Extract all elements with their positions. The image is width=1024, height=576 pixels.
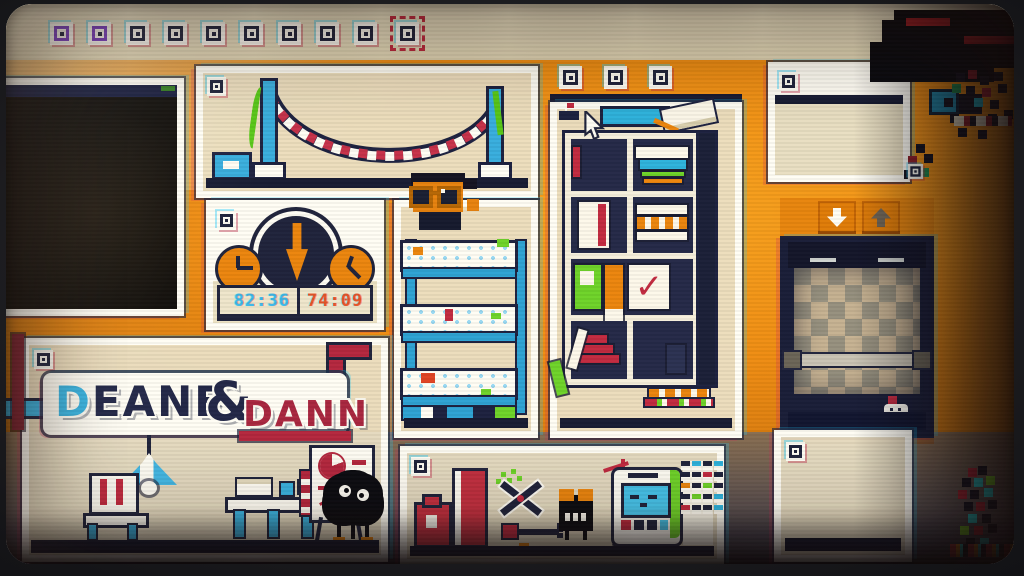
book-checkmark: ✓	[629, 265, 669, 309]
toy-boat	[559, 111, 579, 120]
paper-stack	[237, 479, 271, 495]
bookshelf-rail-bar	[550, 94, 742, 102]
shelf-cell-r1c1	[571, 139, 627, 191]
book-white-horizontal	[637, 205, 687, 214]
glasses-left-lens	[409, 186, 433, 208]
character-body	[419, 212, 461, 230]
tier-2-bar	[403, 333, 515, 341]
mouse-cursor	[583, 111, 605, 139]
table-jar	[281, 483, 293, 495]
film-frame-icon[interactable]	[88, 22, 111, 45]
book-white-horizontal	[636, 147, 688, 158]
bookshelf-tab-icon[interactable]	[649, 66, 672, 89]
blob-eye	[357, 489, 369, 501]
bookshelf-tab-icon[interactable]	[604, 66, 627, 89]
creature-crest	[578, 489, 593, 501]
blob-pupil	[359, 493, 364, 498]
grid-cell[interactable]	[692, 483, 701, 492]
grid-cell[interactable]	[681, 461, 690, 470]
machine-eye	[648, 495, 657, 499]
shelf-post-right	[517, 241, 525, 413]
bottom-edge-shadow	[6, 514, 1014, 564]
grid-cell[interactable]	[714, 461, 723, 470]
dark-room-interior	[6, 97, 177, 309]
film-frame-icon[interactable]	[316, 22, 339, 45]
block-grid[interactable]	[681, 461, 723, 514]
film-frame-selected-icon[interactable]	[396, 22, 419, 45]
chair-back-stripe	[100, 479, 107, 505]
book-orange-slim	[644, 179, 682, 183]
grid-cell[interactable]	[692, 461, 701, 470]
box-navy	[667, 345, 685, 373]
machine-mouth	[640, 503, 647, 507]
book-green	[575, 265, 601, 309]
splat-green	[491, 313, 501, 319]
glasses-character[interactable]	[403, 173, 483, 243]
character-hair-tuft	[461, 179, 477, 189]
window-control-icon[interactable]	[411, 457, 430, 476]
tier-2-tray	[403, 307, 515, 333]
bookshelf-side-slab	[699, 133, 715, 385]
red-wall-pipe	[12, 334, 24, 430]
right-edge-shadow	[853, 4, 1014, 564]
bookshelf-tab-icon[interactable]	[559, 66, 582, 89]
tool-pivot	[517, 495, 524, 502]
grid-cell[interactable]	[681, 494, 690, 503]
window-control-icon[interactable]	[786, 442, 805, 461]
grid-cell[interactable]	[714, 494, 723, 503]
down-arrow-icon	[286, 223, 308, 281]
blob-pupil	[344, 488, 349, 493]
film-frame-icon[interactable]	[50, 22, 73, 45]
rail-cap-left	[782, 350, 802, 370]
crt-bezel: 82:36 74:09	[0, 0, 1024, 576]
game-screen: 82:36 74:09	[6, 4, 1014, 564]
window-control-icon[interactable]	[207, 77, 226, 96]
tier-1-tray	[403, 243, 515, 269]
elevator-down-button[interactable]	[818, 201, 856, 234]
book-red-stack	[583, 335, 607, 343]
machine-vent	[628, 473, 658, 478]
tier-floor	[404, 418, 528, 428]
logo-dann: DANN	[243, 397, 369, 433]
mini-fridge	[579, 202, 609, 248]
window-control-icon[interactable]	[217, 211, 236, 230]
film-frame-icon[interactable]	[278, 22, 301, 45]
film-frame-icon[interactable]	[164, 22, 187, 45]
logo-deane: DEANE	[55, 381, 225, 423]
logo-deane-initial: D	[55, 377, 92, 426]
window-control-icon[interactable]	[34, 350, 53, 369]
lens-glint	[441, 189, 445, 193]
red-pipe-elbow	[329, 345, 369, 357]
blob-eye	[339, 485, 351, 497]
green-sprinkles	[491, 469, 496, 474]
doodle-dash	[352, 460, 366, 465]
splat-orange	[413, 247, 423, 255]
floor-book-stack-mixed	[645, 399, 713, 406]
shelf-cell-r4c1	[571, 321, 627, 379]
grid-cell[interactable]	[692, 494, 701, 503]
splat-orange-red	[421, 373, 435, 383]
book-white-horizontal	[637, 232, 687, 240]
hammock	[261, 83, 507, 183]
tank-cap	[425, 497, 439, 505]
shelf-cell-r2c2	[633, 197, 693, 253]
character-arm	[467, 199, 479, 211]
grid-cell[interactable]	[703, 461, 712, 470]
shelf-cell-r4c2	[633, 321, 693, 379]
splat-green	[481, 389, 491, 397]
bookshelf-floor	[560, 418, 732, 428]
easel-side-strip	[301, 471, 310, 515]
book-red-stack	[579, 345, 613, 353]
glitch-green-dash	[161, 86, 175, 91]
tier-3-tray	[403, 371, 515, 397]
grid-cell[interactable]	[681, 472, 690, 481]
chair-back-stripe	[116, 479, 123, 505]
grid-cell[interactable]	[714, 472, 723, 481]
book-orange	[605, 265, 623, 321]
clock-right-hour-hand	[346, 256, 354, 269]
panel-bookshelf[interactable]: ✓	[550, 102, 742, 438]
boat-flag	[567, 103, 574, 108]
floor-book-stack-orange	[649, 389, 709, 397]
film-frame-icon[interactable]	[240, 22, 263, 45]
panel-tier-shelf[interactable]	[394, 200, 538, 438]
tier-3-bar	[403, 397, 515, 405]
panel-dark-room[interactable]	[6, 78, 184, 316]
shelf-cell-r2c1	[571, 197, 627, 253]
grid-cell[interactable]	[681, 483, 690, 492]
creature-crest	[559, 489, 574, 501]
ceiling-light	[810, 258, 836, 262]
down-arrow-icon	[827, 208, 847, 227]
splat-red	[445, 309, 453, 321]
tier-1-bar	[403, 269, 515, 277]
grid-cell[interactable]	[703, 472, 712, 481]
glasses-bridge	[429, 191, 437, 195]
machine-eye	[630, 495, 639, 499]
pole-base-left	[255, 165, 283, 177]
dark-room-header-bar	[6, 85, 177, 97]
book-red-stack	[575, 355, 619, 363]
shelf-cell-r1c2	[633, 139, 693, 191]
panel-bookshelf-group: ✓	[550, 66, 742, 438]
panel-hammock[interactable]	[196, 66, 538, 198]
window-control-icon[interactable]	[779, 72, 798, 91]
book-green-label	[580, 271, 594, 285]
fridge-door-stripe	[598, 204, 606, 246]
bookshelf-frame: ✓	[565, 133, 699, 385]
timer-display-blue: 82:36	[217, 285, 307, 317]
book-cyan-horizontal	[640, 160, 686, 169]
grid-cell[interactable]	[714, 483, 723, 492]
step-stool	[215, 155, 249, 177]
timer-display-orange: 74:09	[297, 285, 373, 317]
grid-cell[interactable]	[703, 494, 712, 503]
film-frame-icon[interactable]	[202, 22, 225, 45]
shelf-cell-r3: ✓	[571, 259, 693, 315]
splat-green	[497, 239, 509, 247]
chair-back	[89, 473, 139, 515]
book-red-thin	[573, 147, 580, 177]
stool-inset	[223, 161, 239, 169]
panel-clocks[interactable]: 82:36 74:09	[206, 200, 384, 330]
pole-base-right	[481, 165, 509, 177]
book-orange-checker	[637, 217, 687, 229]
clock-left-hour-hand	[236, 256, 240, 268]
film-frame-icon[interactable]	[126, 22, 149, 45]
grid-cell[interactable]	[692, 472, 701, 481]
grid-cell[interactable]	[703, 483, 712, 492]
book-green-slim	[642, 172, 684, 176]
lamp-cord	[147, 435, 151, 455]
film-frame-icon[interactable]	[354, 22, 377, 45]
